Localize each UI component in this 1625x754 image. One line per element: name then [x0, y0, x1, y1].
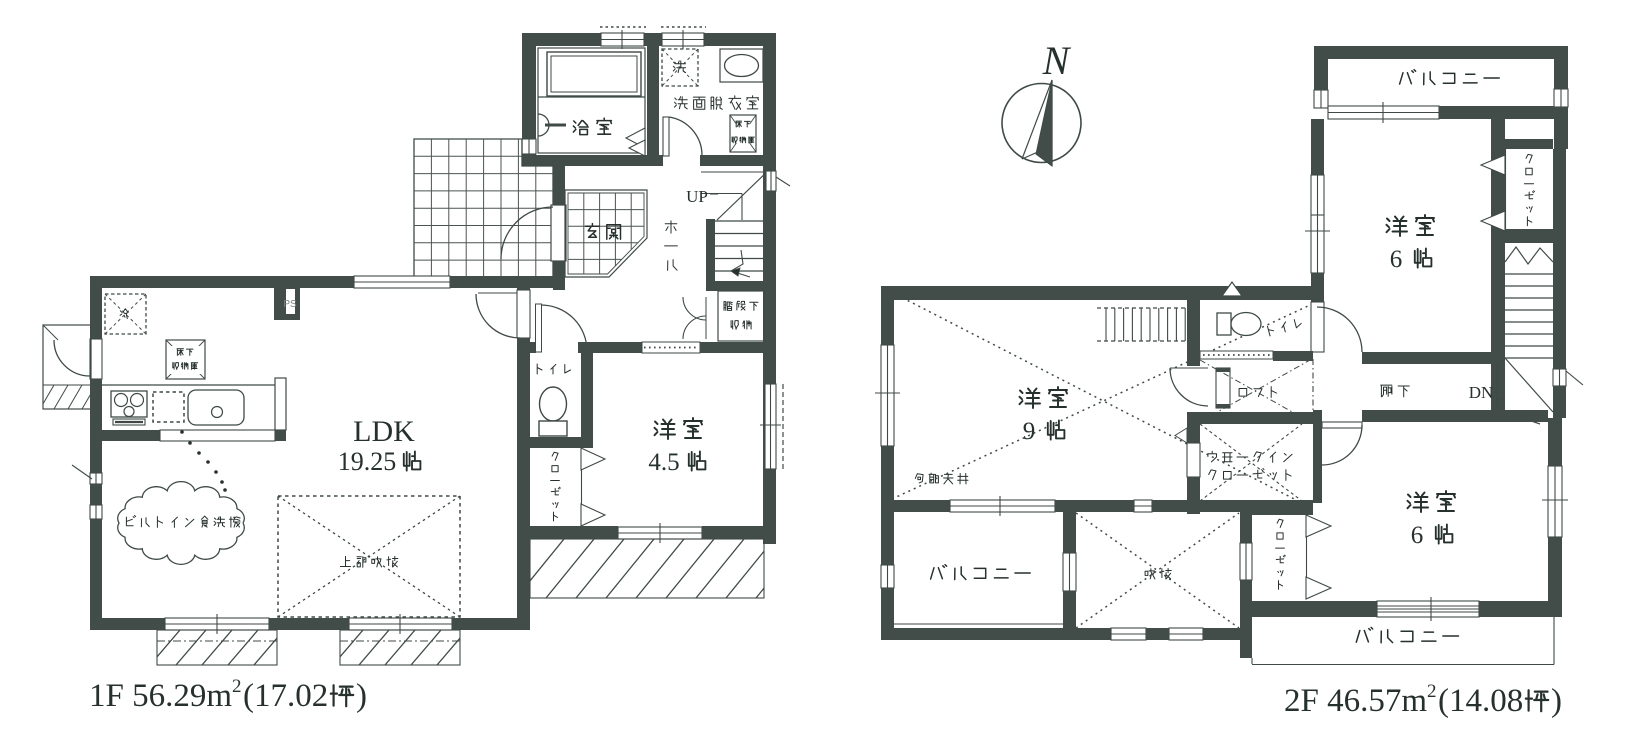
- svg-text:6: 6: [1411, 522, 1424, 549]
- svg-text:UP: UP: [686, 187, 708, 206]
- svg-text:(17.02: (17.02: [243, 678, 328, 714]
- svg-text:N: N: [1042, 38, 1072, 83]
- svg-text:19.25: 19.25: [338, 447, 397, 476]
- svg-text:): ): [1551, 683, 1562, 719]
- svg-text:LDK: LDK: [353, 415, 415, 448]
- svg-text:PS: PS: [283, 299, 297, 310]
- svg-text:(14.08: (14.08: [1438, 683, 1523, 719]
- svg-text:): ): [356, 678, 367, 714]
- svg-text:DN: DN: [1469, 383, 1494, 402]
- svg-text:2F 46.57m: 2F 46.57m: [1284, 683, 1427, 719]
- svg-text:4.5: 4.5: [648, 449, 679, 476]
- svg-text:2: 2: [232, 676, 242, 697]
- svg-text:1F 56.29m: 1F 56.29m: [89, 678, 232, 714]
- svg-text:2: 2: [1427, 681, 1437, 702]
- svg-text:9: 9: [1023, 418, 1036, 445]
- svg-text:6: 6: [1390, 246, 1403, 273]
